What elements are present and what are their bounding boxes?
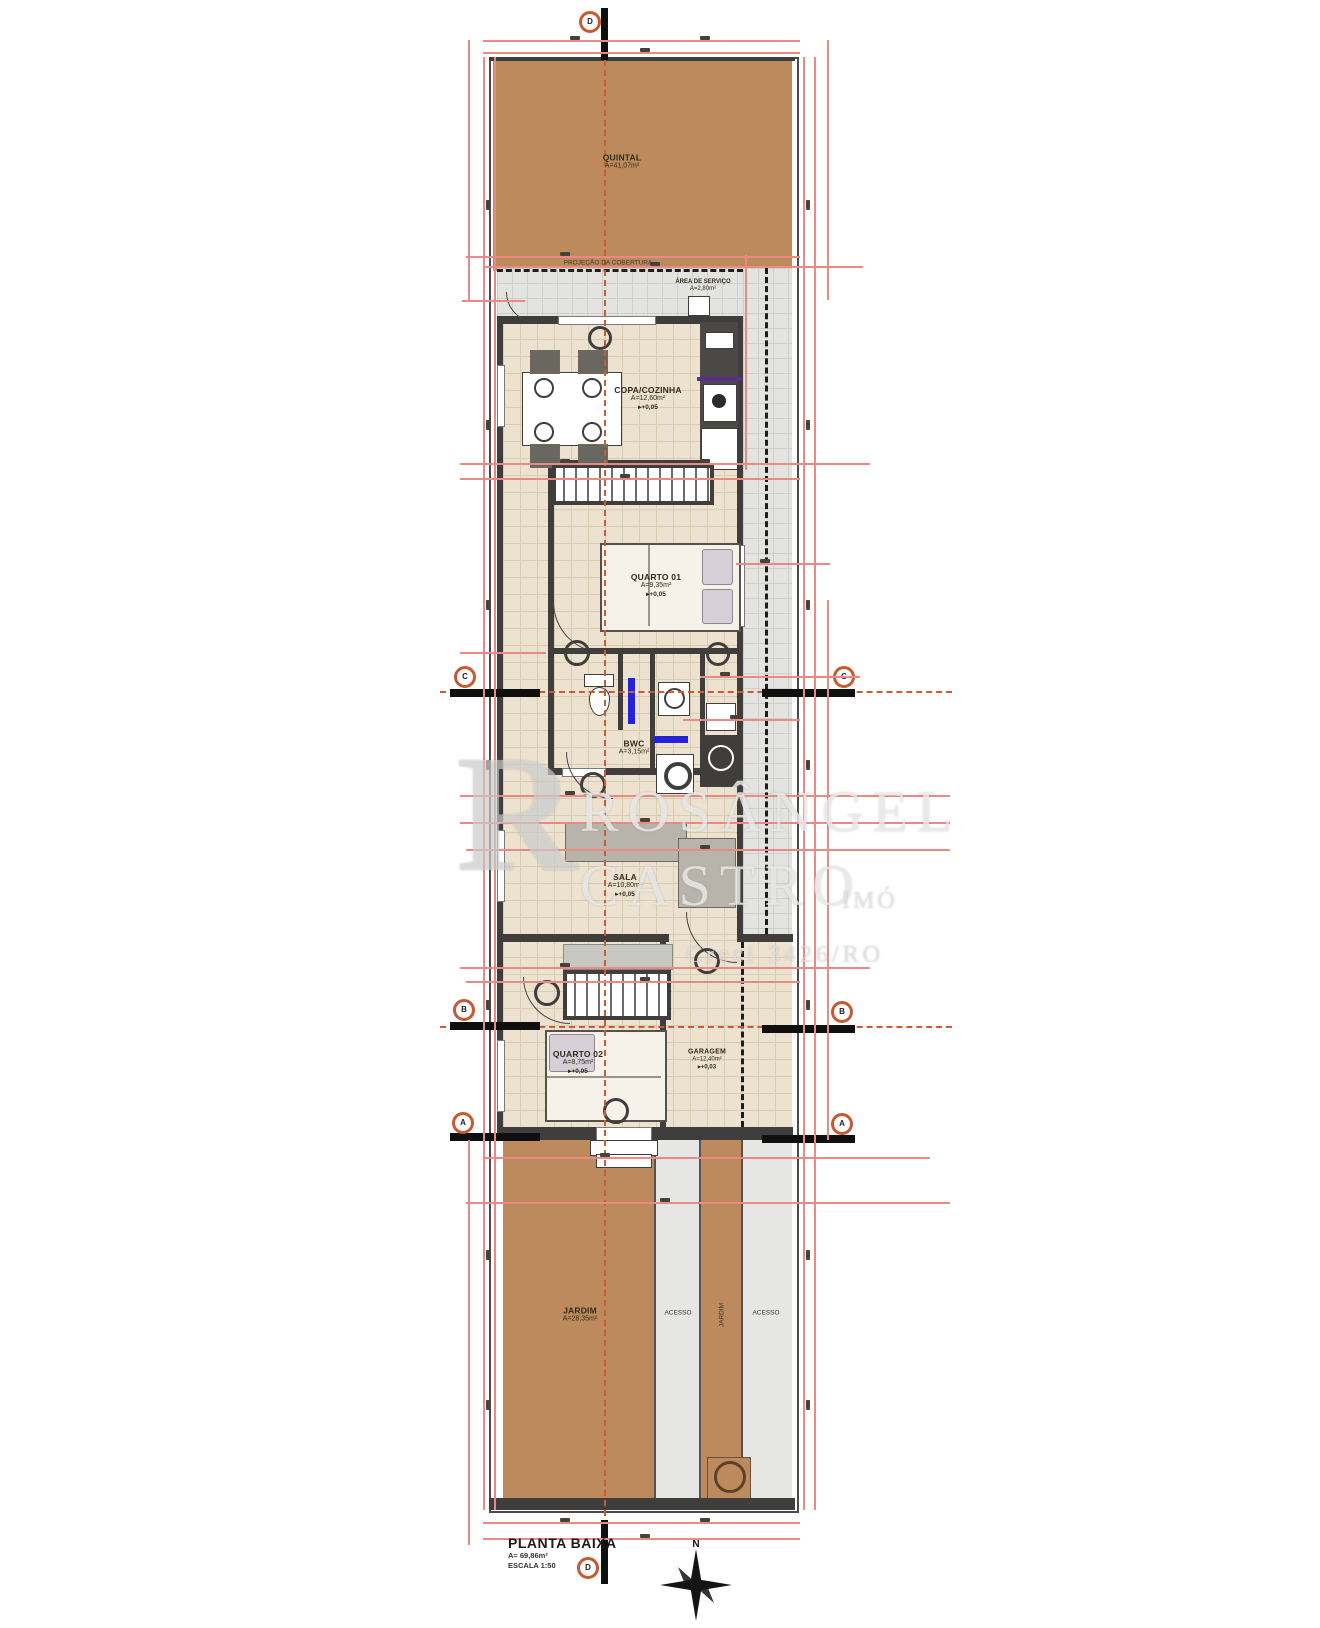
dimension-text [565,791,575,795]
pillow [702,549,733,585]
dimension-text [700,1518,710,1522]
dimension-text [560,963,570,967]
place-setting [582,422,602,442]
dimension-text [620,474,630,478]
service-tank-icon [688,296,710,316]
place-setting [582,378,602,398]
room-area: A=12,60m² [614,395,681,403]
dimension-line [827,40,829,300]
dimension-text [700,845,710,849]
dimension-line [466,849,950,851]
dimension-text [806,200,810,210]
room-area: A=8,75m² [553,1059,603,1067]
dimension-text [720,672,730,676]
dimension-line [483,57,485,1510]
dimension-line [745,255,747,470]
dimension-text [486,1400,490,1410]
dimension-line [494,57,496,1510]
dimension-line [814,57,816,1510]
dimension-text [486,1250,490,1260]
dimension-text [806,1400,810,1410]
dimension-text [486,200,490,210]
dimension-text [486,600,490,610]
tree-icon [714,1461,746,1493]
wall-lot-bottom [489,1498,795,1510]
dimension-text [760,559,770,563]
counter-appliance [705,332,734,349]
dimension-text [806,600,810,610]
section-cut [762,1025,855,1033]
dimension-text [700,459,710,463]
projection-note: PROJEÇÃO DA COBERTURA [564,259,653,266]
door-stop [603,1098,629,1124]
room-label-quarto2: QUARTO 02 A=8,75m² ▸+0,05 [553,1049,603,1075]
roof-projection-line [765,268,768,934]
dimension-text [640,48,650,52]
room-area: A=28,35m² [563,1316,597,1324]
room-label-garagem: GARAGEM A=12,40m² ▸+0,03 [688,1049,726,1072]
dimension-line [466,1202,950,1204]
dimension-text [486,760,490,770]
drawing-scale: ESCALA 1:50 [508,1561,617,1571]
strip-divider [654,1140,656,1498]
dimension-line [483,1157,930,1159]
dimension-text [560,1518,570,1522]
driveway-left-strip [655,1140,700,1498]
dimension-line [468,1140,470,1545]
wall-corridor-end [743,934,793,942]
wall-house-left [497,316,503,1140]
driveway-right-strip [742,1140,792,1498]
dimension-line [827,600,829,1140]
door-pivot [564,640,590,666]
room-name: BWC [619,739,650,749]
dimension-text [806,1000,810,1010]
bedroom2-window [497,1040,505,1112]
pillow [702,589,733,624]
dimension-line [483,52,800,54]
dimension-text [806,420,810,430]
room-name: QUARTO 02 [553,1049,603,1059]
wardrobe-bedroom2 [563,970,671,1020]
dimension-line [468,40,470,300]
section-marker-b-right: B [831,1001,853,1023]
dimension-text [570,36,580,40]
dimension-text [806,1250,810,1260]
roof-projection-line [497,269,743,272]
room-level: ▸+0,05 [553,1067,603,1075]
room-area: A=3,15m² [619,749,650,757]
dimension-line [460,463,870,465]
room-level: ▸+0,05 [608,890,642,898]
dimension-text [640,977,650,981]
room-level: ▸+0,05 [631,590,681,598]
dimension-text [560,252,570,256]
room-label-quintal: QUINTAL A=41,07m² [603,153,642,172]
ceiling-light-icon [588,326,612,350]
dimension-text [806,760,810,770]
section-marker-top: D [579,11,601,33]
floor-plan-sheet: D D C C B B A A QUINTAL A=41,07m² PROJEÇ… [0,0,1320,1628]
dimension-text [600,1153,610,1157]
room-label-sala: SALA A=10,80m² ▸+0,05 [608,872,642,898]
room-name: QUARTO 01 [631,572,681,582]
washer-door [664,762,692,790]
wardrobe-bedroom1 [552,464,714,505]
dimension-line [483,266,863,268]
room-name: COPA/COZINHA [614,385,681,395]
chair [530,350,560,374]
room-area: A=2,80m² [675,286,730,293]
kitchen-side-window [497,365,505,427]
wall-hall-left [548,460,554,775]
room-label-quarto1: QUARTO 01 A=9,35m² ▸+0,05 [631,572,681,598]
room-area: A=9,35m² [631,582,681,590]
room-label-jardim: JARDIM A=28,35m² [563,1306,597,1325]
room-name: ÁREA DE SERVIÇO [675,279,730,286]
room-label-cozinha: COPA/COZINHA A=12,60m² ▸+0,05 [614,385,681,411]
dimension-line [700,676,860,678]
dimension-line [803,57,805,1510]
room-name: GARAGEM [688,1049,726,1057]
room-label-banheiro: BWC A=3,15m² [619,739,650,758]
room-area: A=12,40m² [688,1057,726,1064]
backyard-quintal [493,61,792,271]
tank-basin [708,745,734,771]
drawing-area: A= 69,86m² [508,1551,617,1561]
dimension-text [660,1198,670,1202]
dimension-text [640,818,650,822]
room-level: ▸+0,03 [688,1064,726,1071]
dimension-line [466,981,800,983]
toilet-tank [584,674,614,687]
place-setting [534,422,554,442]
drawing-title: PLANTA BAIXA [508,1536,617,1551]
watermark-line2b: IMÓ [842,888,898,915]
section-marker-b-left: B [453,999,475,1021]
dimension-text [640,1534,650,1538]
dimension-line [483,1522,800,1524]
dimension-line [460,822,950,824]
section-marker-a-left: A [452,1112,474,1134]
title-block: PLANTA BAIXA A= 69,86m² ESCALA 1:50 [508,1536,617,1571]
section-axis-vertical [604,30,606,1526]
laundry-counter-blue [654,736,688,743]
dimension-text [486,420,490,430]
dimension-line [466,256,800,258]
strip-label-left: ACESSO [664,1309,691,1316]
dimension-line [483,40,800,42]
dimension-text [560,459,570,463]
dimension-text [730,715,740,719]
room-area: A=10,80m² [608,882,642,890]
north-compass: N [650,1543,742,1628]
wall-bath-div2 [650,654,655,775]
dimension-line [460,795,950,797]
door-pivot [694,948,720,974]
compass-rose-icon [650,1543,742,1628]
strip-label-center: JARDIM [718,1303,725,1327]
dimension-line [683,719,800,721]
room-level: ▸+0,05 [614,403,681,411]
dimension-text [486,1000,490,1010]
dimension-line [460,967,870,969]
door-stop [706,642,730,666]
dimension-line [460,478,800,480]
counter-edge-purple [697,377,741,381]
dimension-text [700,36,710,40]
shower-glass [628,678,635,724]
room-label-servico: ÁREA DE SERVIÇO A=2,80m² [675,279,730,293]
room-name: QUINTAL [603,153,642,163]
section-marker-a-right: A [831,1113,853,1135]
strip-label-right: ACESSO [752,1309,779,1316]
kitchen-window [558,316,656,325]
wall-bedroom2-top [497,934,669,942]
stove-burner [712,394,726,408]
roof-projection-line [741,942,744,1127]
north-label: N [692,1539,699,1550]
wall-lot-top [489,57,795,61]
dimension-line [460,652,546,654]
strip-divider [741,1140,743,1498]
room-name: JARDIM [563,1306,597,1316]
section-cut [762,689,855,697]
door-pivot [534,980,560,1006]
room-area: A=41,07m² [603,163,642,171]
living-window [497,830,505,902]
sofa-main [565,822,687,862]
section-cut [762,1135,855,1143]
section-marker-c-left: C [454,666,476,688]
place-setting [534,378,554,398]
strip-divider [699,1140,701,1498]
room-name: SALA [608,872,642,882]
